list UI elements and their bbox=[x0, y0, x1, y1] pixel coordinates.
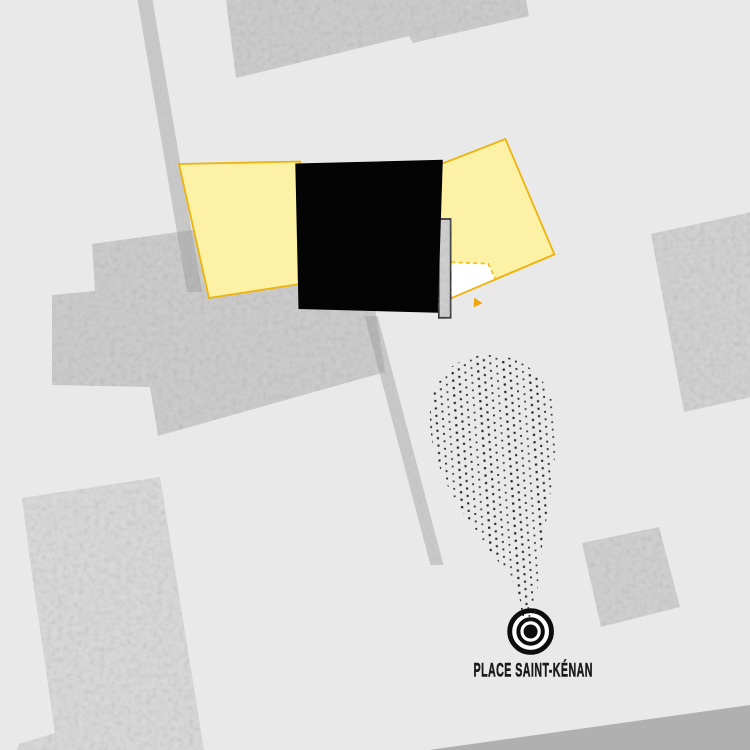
svg-text:PLACE SAINT-KÉNAN: PLACE SAINT-KÉNAN bbox=[474, 658, 593, 682]
